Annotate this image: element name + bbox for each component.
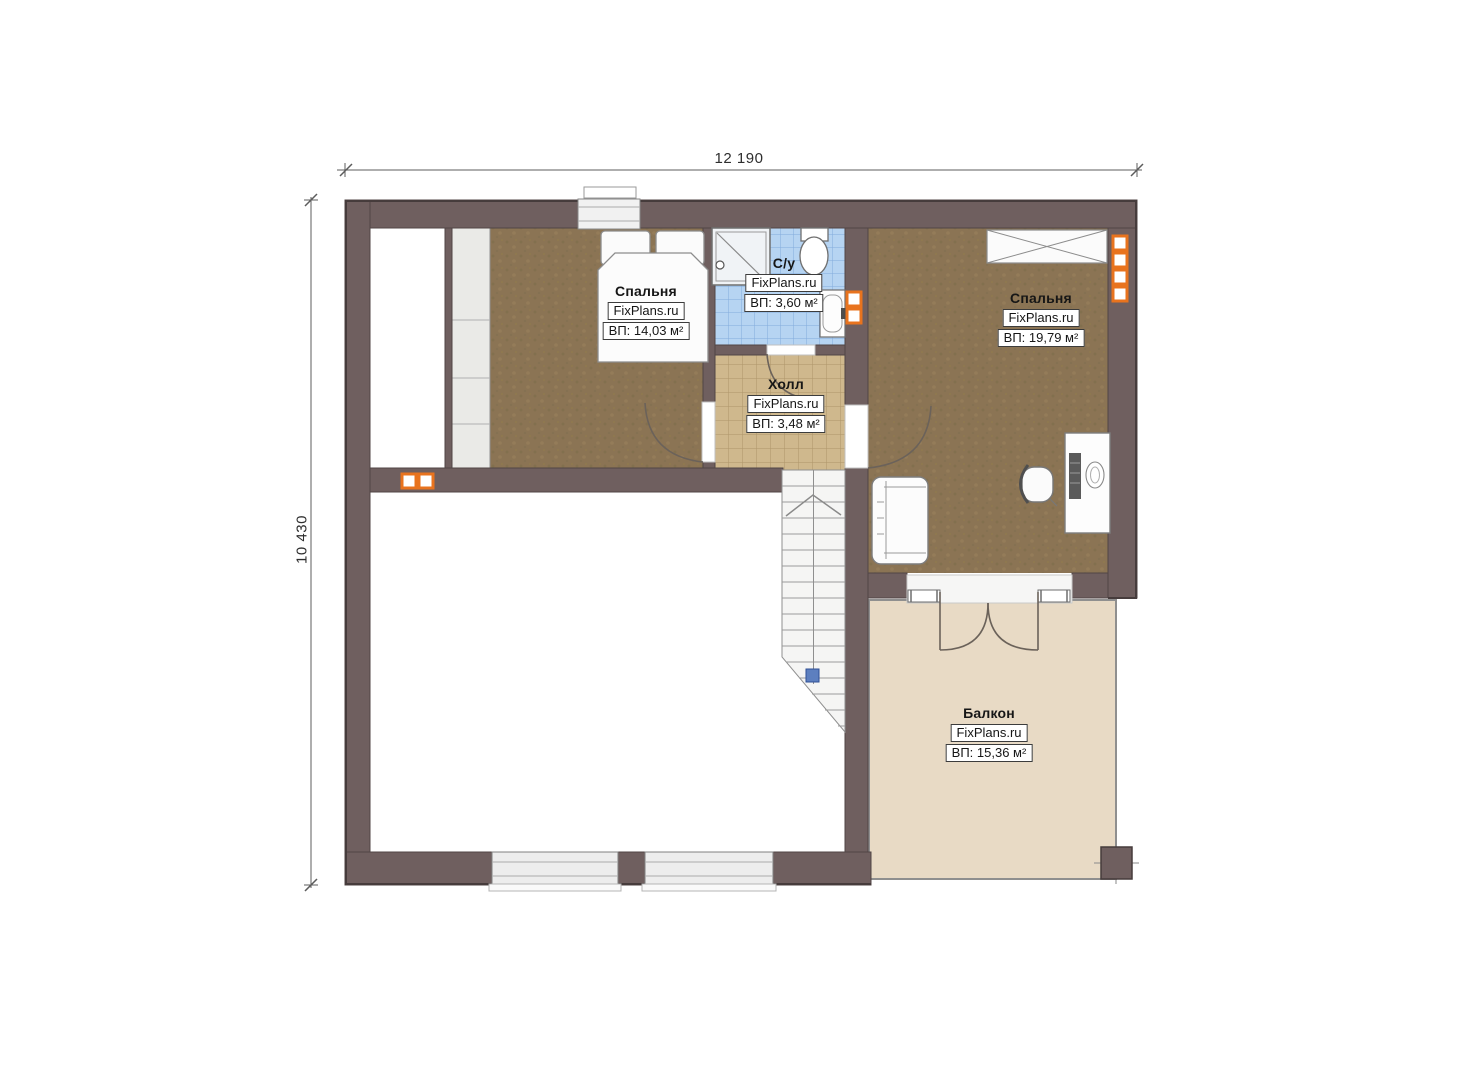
window-bottom-left (489, 852, 621, 891)
area-label: ВП: 19,79 м² (998, 329, 1085, 347)
sofa (872, 477, 928, 564)
balcony-window-left (908, 590, 940, 602)
room-label-bathroom: С/у FixPlans.ru ВП: 3,60 м² (744, 256, 823, 312)
area-label: ВП: 3,60 м² (744, 294, 823, 312)
watermark-label: FixPlans.ru (1002, 309, 1079, 327)
door-leaf-bathroom (767, 345, 815, 355)
dimension-height-label: 10 430 (294, 500, 311, 580)
computer (1069, 453, 1081, 499)
balcony-corner-post (1094, 840, 1139, 884)
watermark-label: FixPlans.ru (950, 724, 1027, 742)
balcony-window-right (1038, 590, 1070, 602)
storage-niche (370, 228, 445, 468)
door-leaf-bedroom-left (702, 402, 715, 462)
room-label-hall: Холл FixPlans.ru ВП: 3,48 м² (746, 377, 825, 433)
window-top (578, 187, 640, 229)
room-name: Спальня (603, 284, 690, 299)
area-label: ВП: 15,36 м² (946, 744, 1033, 762)
room-label-bedroom-right: Спальня FixPlans.ru ВП: 19,79 м² (998, 291, 1085, 347)
washbasin (820, 290, 847, 337)
area-label: ВП: 14,03 м² (603, 322, 690, 340)
window-bottom-right (642, 852, 776, 891)
watermark-label: FixPlans.ru (745, 274, 822, 292)
room-name: Холл (746, 377, 825, 392)
wardrobe-left (452, 228, 490, 468)
watermark-label: FixPlans.ru (607, 302, 684, 320)
room-label-balcony: Балкон FixPlans.ru ВП: 15,36 м² (946, 706, 1033, 762)
desk (1065, 433, 1110, 533)
room-name: Балкон (946, 706, 1033, 721)
wardrobe-right (987, 230, 1107, 263)
dimension-width-label: 12 190 (694, 150, 784, 167)
watermark-label: FixPlans.ru (747, 395, 824, 413)
room-label-bedroom-left: Спальня FixPlans.ru ВП: 14,03 м² (603, 284, 690, 340)
room-name: Спальня (998, 291, 1085, 306)
door-leaf-bedroom-right (845, 405, 868, 468)
area-label: ВП: 3,48 м² (746, 415, 825, 433)
floor-plan-canvas: 12 190 10 430 Спальня FixPlans.ru ВП: 14… (0, 0, 1474, 1080)
balcony-opening (907, 575, 1072, 603)
room-name: С/у (744, 256, 823, 271)
stairs-marker (806, 669, 819, 682)
